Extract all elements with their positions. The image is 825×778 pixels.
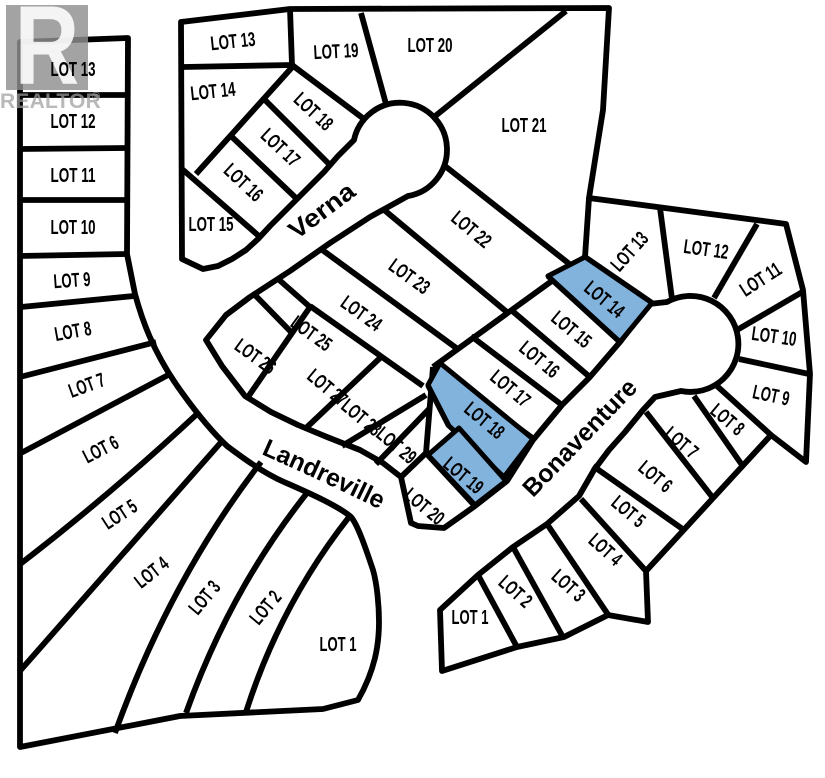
svg-text:LOT 12: LOT 12 [51, 111, 96, 133]
svg-text:LOT 1: LOT 1 [452, 607, 489, 629]
svg-text:LOT 20: LOT 20 [408, 35, 453, 57]
svg-text:LOT 11: LOT 11 [51, 165, 96, 187]
svg-text:REALTOR: REALTOR [0, 90, 101, 113]
svg-text:LOT 21: LOT 21 [502, 115, 547, 137]
svg-text:LOT 10: LOT 10 [51, 217, 96, 239]
svg-text:LOT 13: LOT 13 [51, 59, 96, 81]
svg-text:LOT 9: LOT 9 [53, 269, 91, 294]
svg-text:®: ® [92, 91, 100, 103]
svg-text:LOT 13: LOT 13 [209, 29, 256, 56]
svg-text:LOT 1: LOT 1 [320, 634, 357, 656]
svg-text:LOT 19: LOT 19 [313, 40, 359, 64]
svg-text:LOT 15: LOT 15 [189, 214, 234, 236]
